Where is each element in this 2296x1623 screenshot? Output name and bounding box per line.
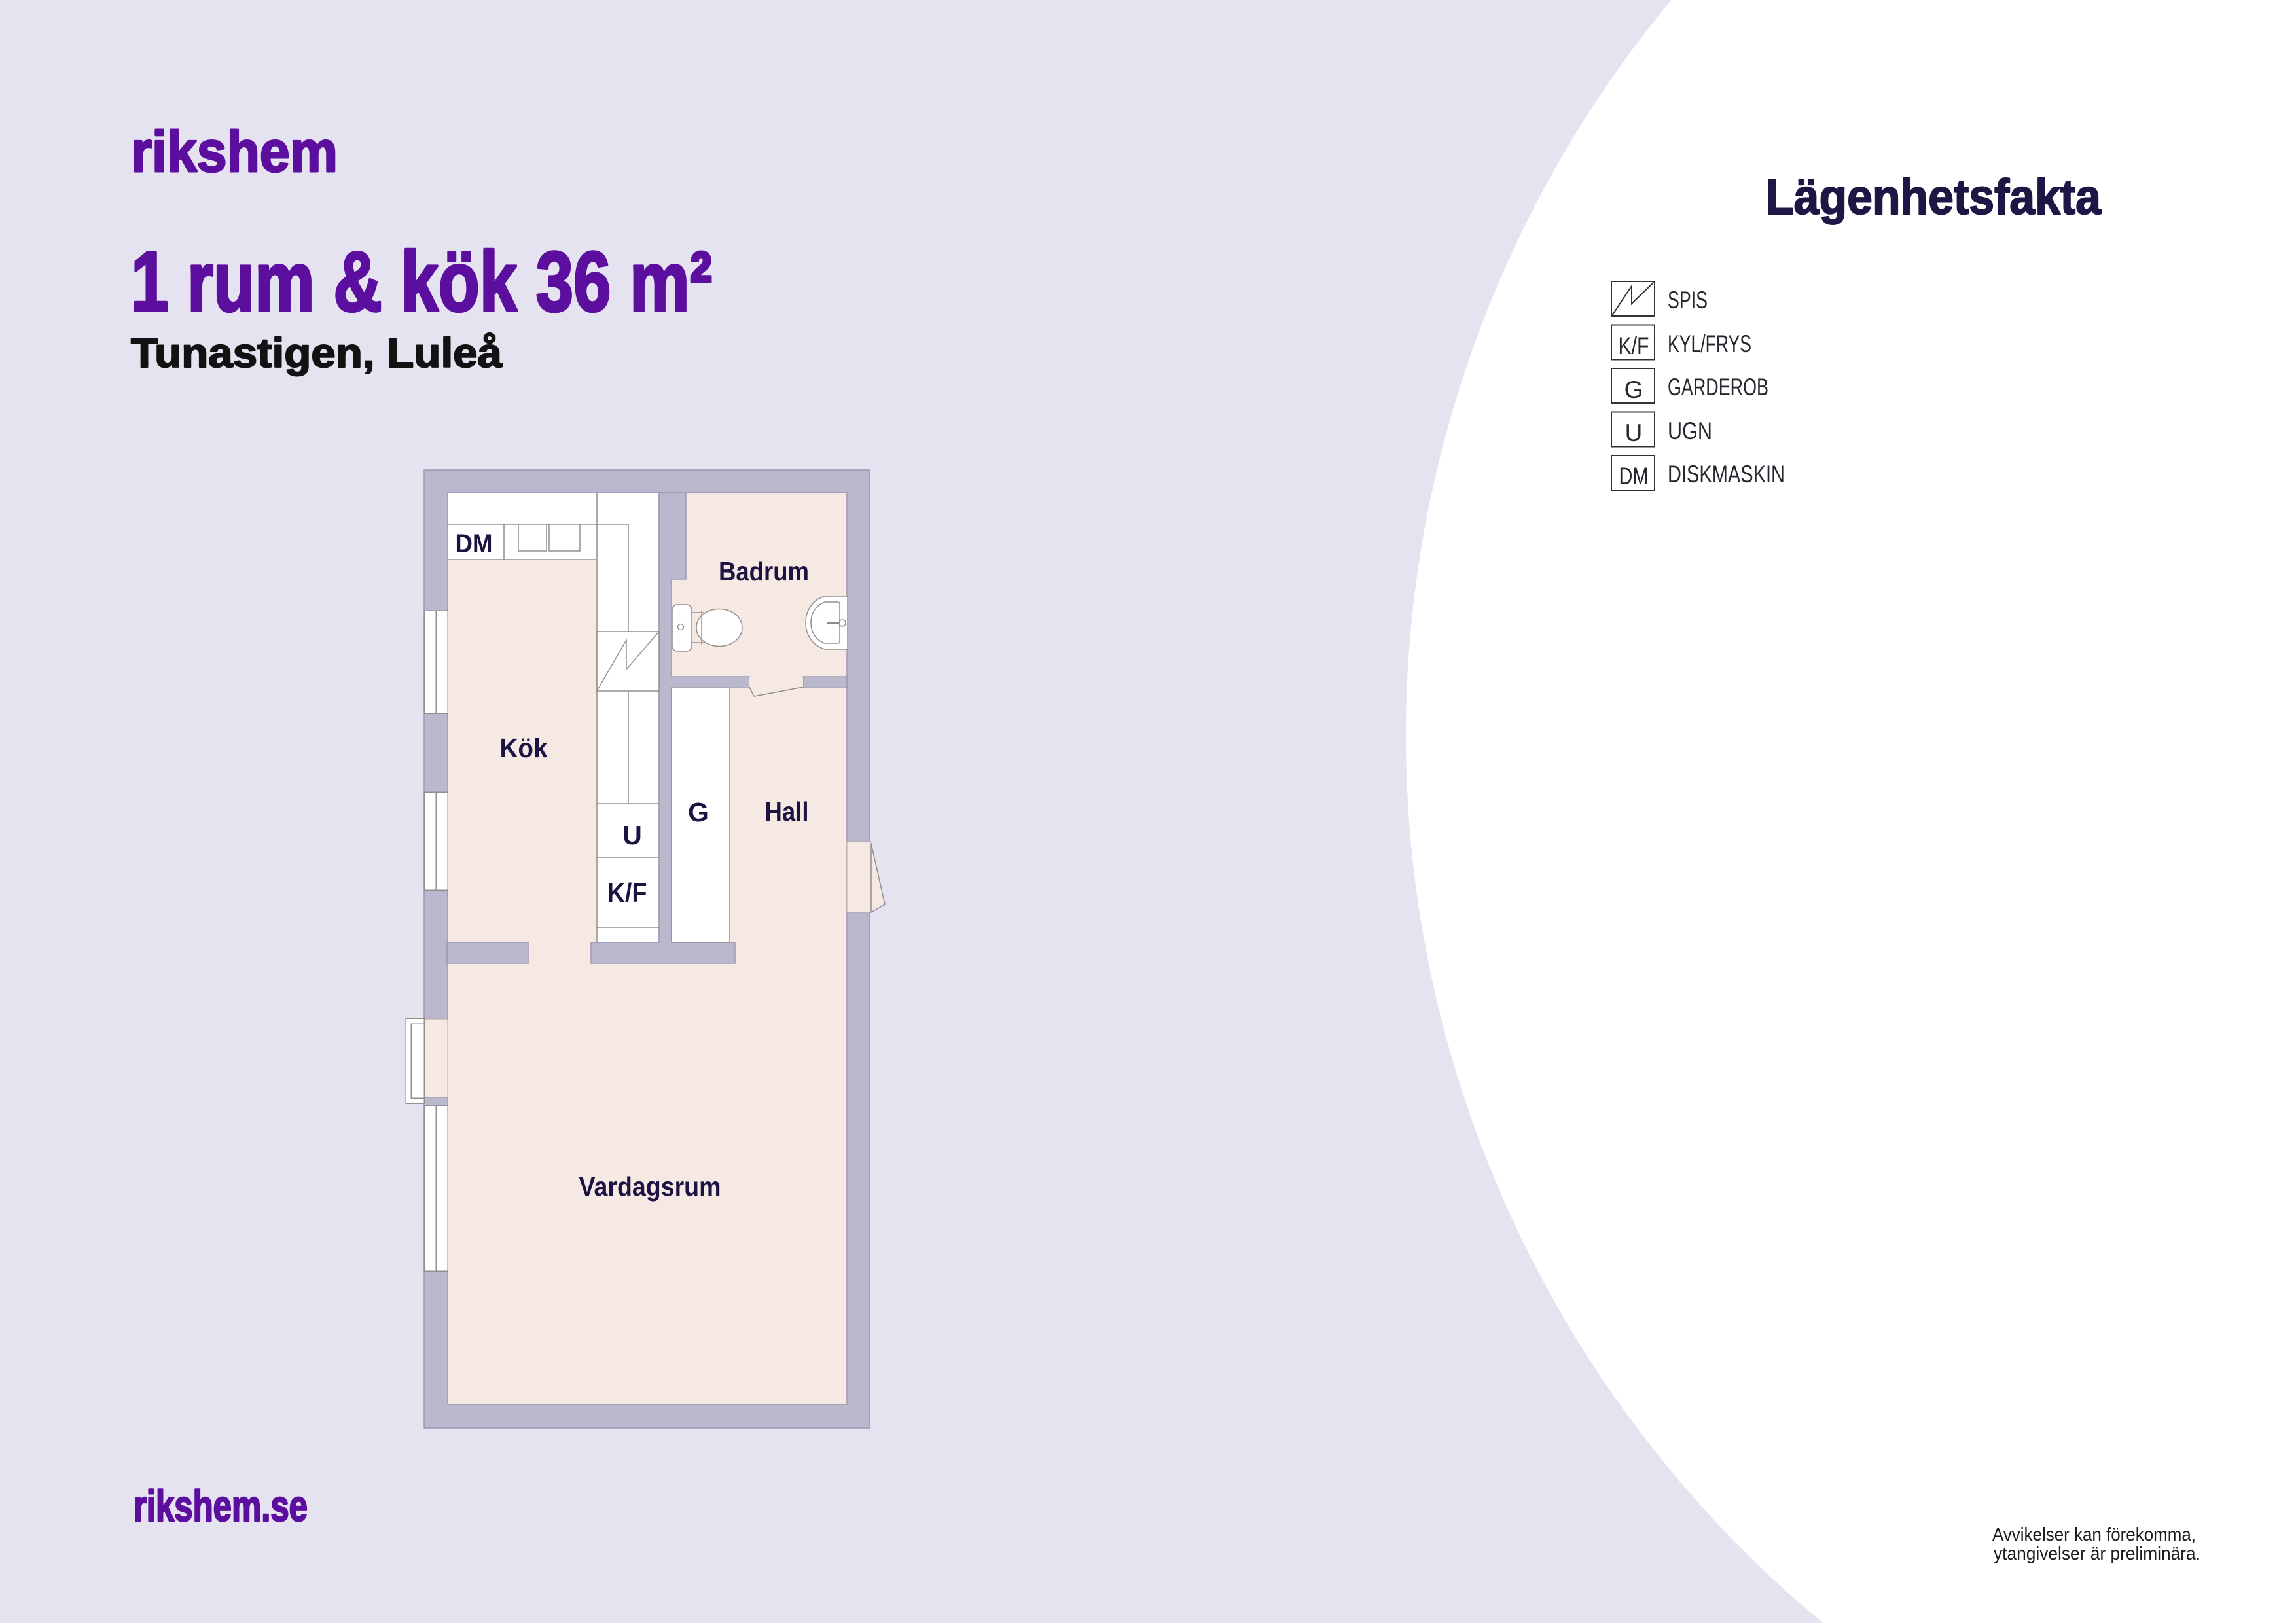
svg-text:Lägenhetsfakta: Lägenhetsfakta: [1766, 169, 2102, 225]
svg-text:SPIS: SPIS: [1668, 287, 1708, 313]
svg-text:U: U: [622, 820, 642, 850]
svg-text:Hall: Hall: [765, 796, 809, 827]
svg-text:GARDEROB: GARDEROB: [1668, 374, 1768, 401]
svg-text:DISKMASKIN: DISKMASKIN: [1668, 461, 1785, 488]
svg-text:U: U: [1625, 419, 1643, 446]
svg-text:DM: DM: [1619, 463, 1649, 490]
svg-text:1 rum & kök 36 m²: 1 rum & kök 36 m²: [131, 234, 712, 329]
svg-text:DM: DM: [456, 529, 493, 558]
svg-text:ytangivelser är preliminära.: ytangivelser är preliminära.: [1994, 1543, 2200, 1563]
svg-text:KYL/FRYS: KYL/FRYS: [1668, 330, 1751, 357]
svg-text:G: G: [1624, 376, 1643, 403]
svg-text:G: G: [688, 797, 709, 827]
svg-text:Tunastigen, Luleå: Tunastigen, Luleå: [131, 330, 503, 376]
svg-text:Vardagsrum: Vardagsrum: [579, 1171, 721, 1202]
svg-text:UGN: UGN: [1668, 418, 1712, 444]
svg-text:K/F: K/F: [607, 878, 647, 908]
svg-text:Avvikelser kan förekomma,: Avvikelser kan förekomma,: [1992, 1524, 2196, 1544]
svg-text:rikshem: rikshem: [131, 119, 338, 184]
svg-text:Badrum: Badrum: [719, 556, 809, 586]
svg-text:Kök: Kök: [500, 733, 548, 763]
svg-text:rikshem.se: rikshem.se: [134, 1482, 308, 1531]
svg-text:K/F: K/F: [1619, 332, 1649, 359]
